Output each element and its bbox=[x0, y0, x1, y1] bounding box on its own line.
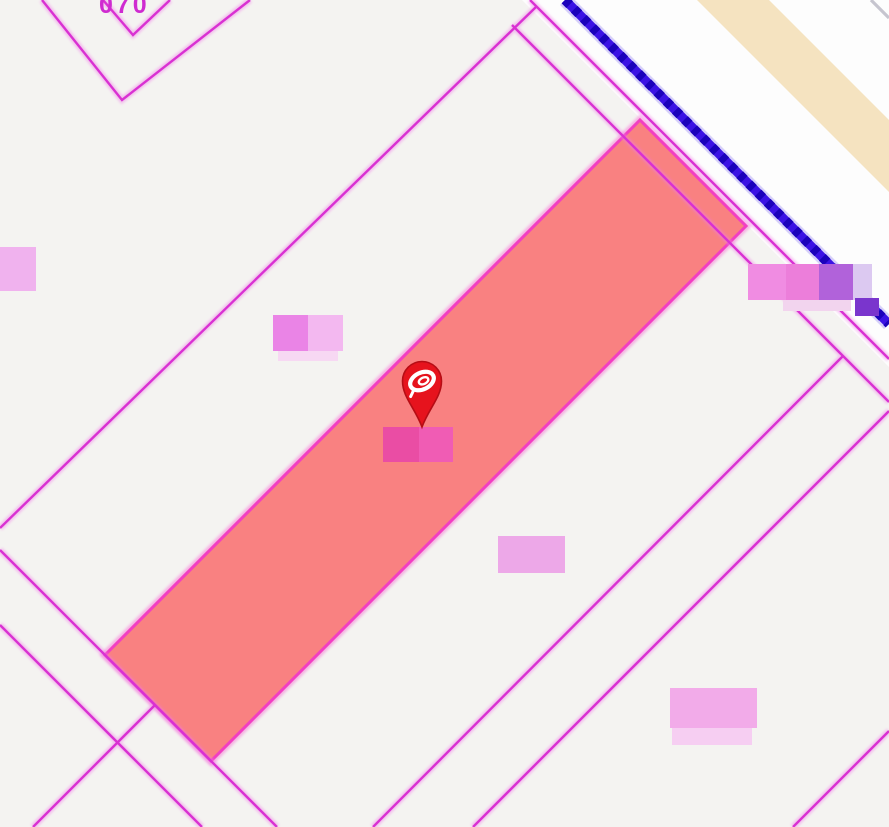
blur-block bbox=[498, 536, 565, 573]
blur-block bbox=[273, 315, 308, 351]
blurred-label-selected-parcel bbox=[383, 427, 453, 462]
map-canvas[interactable]: 070 bbox=[0, 0, 889, 827]
map-layers: 070 bbox=[0, 0, 889, 827]
blur-block bbox=[419, 427, 453, 462]
blurred-label-right-strip bbox=[498, 536, 565, 573]
blur-block bbox=[0, 247, 36, 291]
blur-block bbox=[278, 351, 338, 361]
blur-block bbox=[783, 300, 851, 311]
blur-block bbox=[670, 688, 757, 728]
blur-block bbox=[819, 264, 853, 300]
blur-block bbox=[308, 315, 343, 351]
blur-block bbox=[383, 427, 419, 462]
parcel-number-text: 070 bbox=[99, 0, 150, 19]
blur-block bbox=[748, 264, 786, 300]
blur-block bbox=[786, 264, 819, 300]
blur-block bbox=[853, 264, 872, 300]
blurred-label-left-strip bbox=[273, 315, 343, 361]
blurred-label-bottom-right bbox=[670, 688, 757, 745]
blurred-label-left-edge bbox=[0, 247, 36, 291]
blur-block bbox=[855, 298, 879, 316]
blur-block bbox=[672, 728, 752, 745]
